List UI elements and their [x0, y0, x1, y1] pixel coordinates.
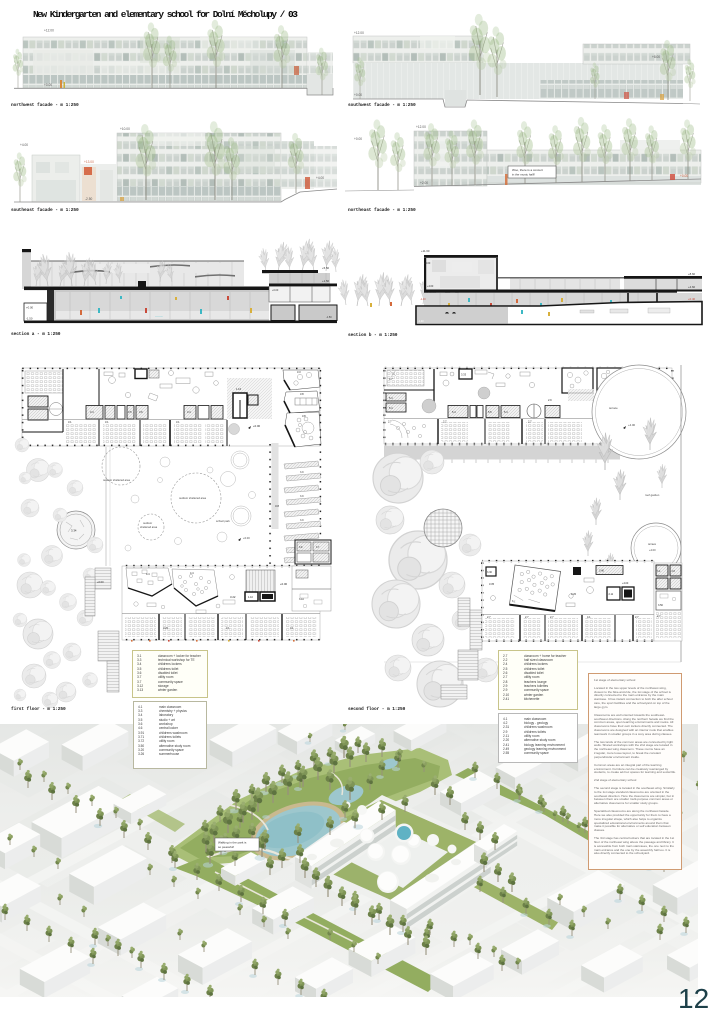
svg-text:5.4: 5.4 — [389, 407, 393, 410]
svg-text:+9.60: +9.60 — [424, 262, 431, 265]
svg-text:+4.00: +4.00 — [20, 143, 28, 147]
svg-text:3.9: 3.9 — [300, 471, 304, 474]
svg-text:+4.00: +4.00 — [649, 548, 656, 552]
svg-text:4.7: 4.7 — [389, 377, 393, 381]
svg-text:+0.40: +0.40 — [688, 297, 696, 301]
svg-text:2.7: 2.7 — [635, 615, 639, 619]
svg-text:3.33: 3.33 — [461, 373, 467, 377]
svg-text:+12.00: +12.00 — [44, 29, 54, 33]
svg-text:+8.00: +8.00 — [652, 55, 660, 59]
svg-text:1.10: 1.10 — [248, 596, 253, 599]
svg-text:3.8: 3.8 — [302, 414, 306, 418]
svg-text:2.7: 2.7 — [388, 420, 392, 424]
svg-text:5.4: 5.4 — [452, 410, 456, 414]
svg-text:3.6: 3.6 — [139, 410, 143, 414]
svg-text:3.50: 3.50 — [658, 604, 663, 607]
svg-text:+0.00: +0.00 — [253, 424, 261, 428]
svg-text:3.1: 3.1 — [290, 626, 294, 630]
svg-text:2.9: 2.9 — [548, 398, 552, 402]
svg-text:outdoor: outdoor — [143, 521, 152, 525]
svg-text:+12.00: +12.00 — [354, 31, 364, 35]
svg-text:outdoor sheltered area: outdoor sheltered area — [179, 496, 207, 500]
svg-text:3.9: 3.9 — [300, 519, 304, 522]
svg-text:+0.00: +0.00 — [680, 174, 688, 178]
svg-text:+4.00: +4.00 — [628, 423, 636, 427]
svg-text:3.1: 3.1 — [105, 420, 109, 424]
svg-text:+0.00: +0.00 — [97, 580, 104, 584]
svg-text:+0.00: +0.00 — [26, 306, 34, 310]
svg-text:+4.60: +4.60 — [427, 285, 434, 288]
svg-text:3.34: 3.34 — [71, 529, 77, 533]
svg-text:3.8: 3.8 — [275, 504, 279, 508]
svg-text:3.35: 3.35 — [489, 582, 495, 586]
svg-text:+11.60: +11.60 — [421, 249, 430, 253]
svg-text:3.1: 3.1 — [176, 420, 180, 424]
svg-text:-1.50: -1.50 — [26, 317, 33, 321]
svg-text:2.7: 2.7 — [487, 615, 491, 619]
svg-text:school park: school park — [216, 519, 230, 523]
svg-text:-1.40: -1.40 — [420, 298, 426, 301]
svg-text:2.7: 2.7 — [550, 615, 554, 619]
svg-text:+10.00: +10.00 — [120, 127, 130, 131]
svg-text:+0.00: +0.00 — [354, 137, 362, 141]
svg-text:-1.40: -1.40 — [418, 320, 424, 323]
svg-text:+0.00: +0.00 — [243, 536, 250, 540]
svg-text:+0.00: +0.00 — [354, 93, 362, 97]
svg-text:2.7: 2.7 — [657, 615, 661, 618]
svg-text:3.8: 3.8 — [300, 392, 304, 396]
svg-text:terrace: terrace — [648, 542, 657, 546]
svg-text:5.4: 5.4 — [504, 410, 508, 414]
svg-text:4.4: 4.4 — [190, 571, 194, 575]
svg-text:so peaceful!: so peaceful! — [218, 845, 234, 849]
svg-text:3.5: 3.5 — [128, 410, 132, 414]
svg-text:3.20: 3.20 — [163, 626, 169, 630]
svg-text:+5.50: +5.50 — [322, 266, 330, 270]
svg-text:terrace: terrace — [609, 406, 618, 410]
svg-text:-1.50: -1.50 — [326, 316, 332, 319]
svg-text:+13.00: +13.00 — [84, 160, 94, 164]
svg-text:3.9: 3.9 — [300, 495, 304, 498]
svg-text:+4.60: +4.60 — [688, 285, 696, 289]
svg-text:+0.00: +0.00 — [280, 582, 288, 586]
svg-text:1.16: 1.16 — [236, 387, 242, 391]
svg-text:5.5: 5.5 — [488, 410, 492, 414]
svg-text:2.7: 2.7 — [525, 615, 529, 619]
svg-text:+12.00: +12.00 — [416, 125, 426, 129]
svg-text:roof garden: roof garden — [645, 493, 660, 497]
svg-text:3.4: 3.4 — [90, 410, 94, 414]
svg-text:3.1: 3.1 — [226, 626, 230, 630]
svg-text:Walking in the park is: Walking in the park is — [218, 841, 247, 845]
svg-text:3.20: 3.20 — [571, 592, 577, 596]
svg-text:+4.00: +4.00 — [316, 176, 324, 180]
svg-text:3.10: 3.10 — [299, 598, 304, 601]
svg-text:3.3: 3.3 — [297, 370, 301, 374]
svg-text:4.1: 4.1 — [587, 615, 591, 619]
svg-text:3.30: 3.30 — [487, 571, 492, 574]
svg-text:⌣⌣⌣⌣: ⌣⌣⌣⌣ — [155, 314, 163, 318]
svg-text:sheltered area: sheltered area — [140, 525, 158, 529]
svg-text:3.1: 3.1 — [68, 420, 72, 424]
svg-text:in the music hall!!: in the music hall!! — [512, 173, 535, 177]
svg-text:2.11: 2.11 — [609, 593, 614, 596]
svg-text:2.7: 2.7 — [443, 420, 447, 424]
svg-text:-2.50: -2.50 — [85, 197, 92, 201]
svg-text:+8.60: +8.60 — [688, 272, 696, 276]
svg-text:+0.00: +0.00 — [44, 83, 52, 87]
svg-text:5.4: 5.4 — [389, 397, 393, 400]
svg-text:3.40: 3.40 — [599, 570, 604, 573]
svg-text:+1.50: +1.50 — [322, 279, 330, 283]
svg-text:outdoor sheltered area: outdoor sheltered area — [103, 478, 131, 482]
svg-text:4.4: 4.4 — [146, 572, 150, 576]
svg-text:2.7: 2.7 — [528, 420, 532, 424]
svg-text:Woo, there is a concert: Woo, there is a concert — [512, 168, 543, 172]
svg-text:+4.00: +4.00 — [622, 582, 629, 585]
svg-text:3.22: 3.22 — [230, 595, 236, 599]
svg-text:+0.00: +0.00 — [272, 289, 279, 292]
svg-text:3.4: 3.4 — [187, 410, 191, 414]
svg-text:+2.00: +2.00 — [420, 181, 428, 185]
